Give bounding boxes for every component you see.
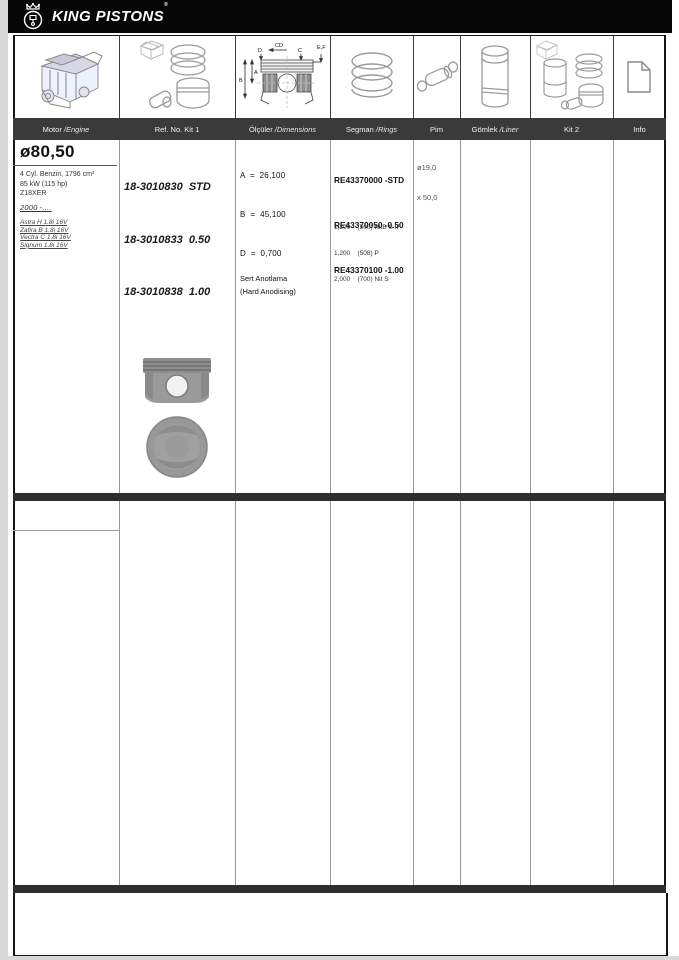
engine-illustration	[24, 44, 110, 112]
kit1-illustration	[137, 38, 217, 116]
rings-illustration	[343, 48, 401, 106]
king-pistons-logo-icon	[20, 3, 46, 31]
ring-ref: RE43370000 -STD	[334, 173, 404, 188]
column-header-info: Info	[613, 118, 666, 140]
grid-line	[330, 501, 331, 885]
dimension-a: A = 26,100	[240, 169, 286, 182]
engine-spec-line: 4 Cyl. Benzin, 1796 cm³	[20, 170, 94, 180]
column-header-pin: Pim	[413, 118, 460, 140]
coating-line: Sert Anotlama	[240, 273, 296, 286]
dimensions-diagram: D CD C E,F A B	[237, 38, 329, 116]
section-divider-bar	[13, 493, 666, 501]
engine-code: Z18XER	[20, 189, 94, 199]
bore-underline	[13, 165, 117, 166]
dimension-values: A = 26,100 B = 45,100 D = 0,700	[240, 143, 286, 286]
dim-label-b: B	[239, 78, 243, 84]
grid-line	[330, 35, 331, 118]
grid-line	[119, 35, 120, 118]
grid-line	[235, 35, 236, 118]
bottom-divider-bar	[13, 885, 666, 893]
grid-line	[530, 35, 531, 118]
table-left-border	[13, 35, 15, 885]
dim-label-a: A	[254, 70, 258, 76]
pin-diameter: ø19,0	[417, 163, 437, 173]
dim-label-c: C	[298, 48, 302, 54]
registered-mark: ®	[164, 2, 168, 8]
kit1-reference-numbers: 18-3010830 STD 18-3010833 0.50 18-301083…	[124, 144, 211, 337]
engine-spec-line: 85 kW (115 hp)	[20, 180, 94, 190]
pin-illustration	[416, 58, 458, 96]
piston-crown-photo	[146, 416, 208, 478]
ring-spec: 2,000 (700) Nit S	[334, 276, 400, 285]
ring-specifications: 1,200 (500) NitB S IF 1,200 (508) P 2,00…	[334, 206, 400, 303]
grid-line	[613, 501, 614, 885]
vehicle-item: Astra H 1.8i 16V	[20, 219, 71, 227]
column-header-ref-kit1: Ref. No. Kit 1	[119, 118, 235, 140]
dim-label-ef: E,F	[317, 45, 326, 51]
column-header-liner: Gömlek /Liner	[460, 118, 530, 140]
grid-line	[330, 140, 331, 493]
piston-side-photo	[139, 357, 215, 405]
table-top-border	[13, 35, 666, 36]
grid-line	[413, 35, 414, 118]
kit1-ref: 18-3010838 1.00	[124, 284, 211, 302]
column-header-motor: Motor /Engine	[13, 118, 119, 140]
grid-line	[530, 140, 531, 493]
liner-illustration	[477, 44, 513, 110]
grid-line	[613, 35, 614, 118]
engine-description: 4 Cyl. Benzin, 1796 cm³ 85 kW (115 hp) Z…	[20, 170, 94, 199]
pin-length: x 50,0	[417, 193, 437, 203]
grid-line	[413, 140, 414, 493]
grid-line	[460, 35, 461, 118]
page-margin-bottom	[0, 956, 679, 960]
footer-area	[13, 893, 668, 957]
catalog-page: KING PISTONS®	[0, 0, 679, 960]
grid-line	[613, 140, 614, 493]
kit1-ref: 18-3010833 0.50	[124, 232, 211, 250]
bore-diameter: ø80,50	[20, 142, 75, 162]
grid-line	[119, 140, 120, 493]
grid-line	[235, 501, 236, 885]
empty-bore-cell-divider	[13, 530, 119, 531]
page-margin-left	[0, 0, 8, 960]
coating-line: (Hard Anodising)	[240, 286, 296, 299]
vehicle-item: Vectra C 1.8i 16V	[20, 234, 71, 242]
ring-spec: 1,200 (500) NitB S IF	[334, 224, 400, 233]
grid-line	[460, 140, 461, 493]
grid-line	[413, 501, 414, 885]
coating-note: Sert Anotlama (Hard Anodising)	[240, 273, 296, 298]
info-document-icon	[626, 60, 652, 94]
production-years: 2000 -....	[20, 203, 52, 212]
brand-header: KING PISTONS®	[8, 0, 672, 33]
brand-name: KING PISTONS®	[52, 8, 168, 25]
grid-line	[119, 501, 120, 885]
table-right-border	[664, 35, 666, 885]
dimension-b: B = 45,100	[240, 208, 286, 221]
ring-spec: 1,200 (508) P	[334, 250, 400, 259]
dim-label-d: D	[258, 48, 262, 54]
pin-dimensions: ø19,0 x 50,0	[417, 143, 437, 223]
vehicle-applications: Astra H 1.8i 16V Zafira B 1.8i 16V Vectr…	[20, 219, 71, 249]
vehicle-item: Signum 1.8i 16V	[20, 242, 71, 250]
column-header-dimensions: Ölçüler /Dimensions	[235, 118, 330, 140]
column-header-kit2: Kit 2	[530, 118, 613, 140]
grid-line	[235, 140, 236, 493]
grid-line	[530, 501, 531, 885]
dim-label-cd: CD	[275, 43, 283, 49]
kit2-illustration	[533, 37, 611, 115]
vehicle-item: Zafira B 1.8i 16V	[20, 227, 71, 235]
kit1-ref: 18-3010830 STD	[124, 179, 211, 197]
column-header-rings: Segman /Rings	[330, 118, 413, 140]
grid-line	[460, 501, 461, 885]
table-header-row: Motor /Engine Ref. No. Kit 1 Ölçüler /Di…	[13, 118, 666, 140]
dimension-d: D = 0,700	[240, 247, 286, 260]
